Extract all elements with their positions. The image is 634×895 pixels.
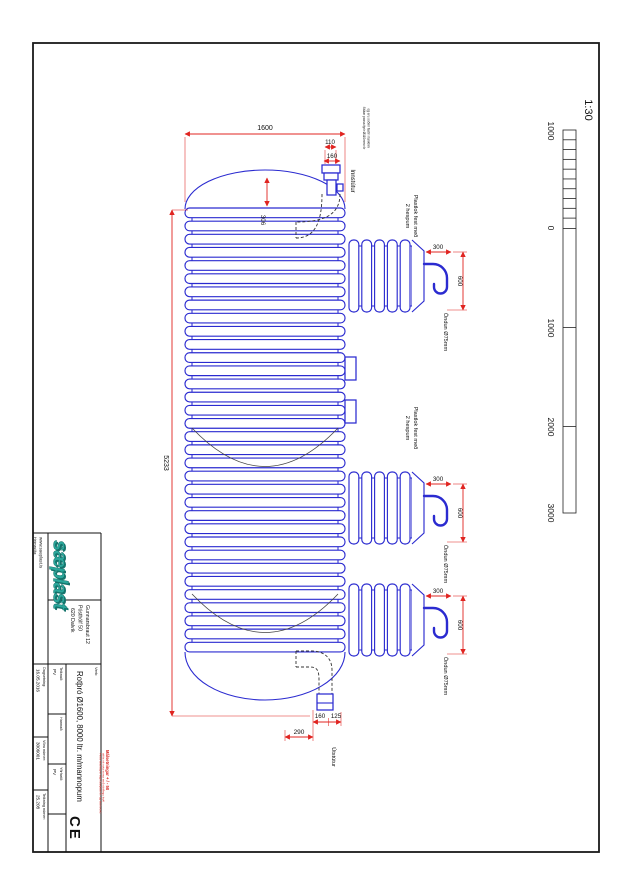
saeplast-logo: sæplast <box>49 540 71 611</box>
designed-label: Hannað: <box>59 717 64 731</box>
outlet-elbow <box>296 651 332 694</box>
dim-vent-height-3: 600 <box>456 620 463 631</box>
lifting-lug-1 <box>345 357 356 380</box>
inlet-label: Innstútur <box>349 169 355 192</box>
checked-value: PV <box>52 769 57 776</box>
date-value: 16.05.2016 <box>36 669 41 692</box>
homepage-label: Heimasíða: <box>33 537 38 555</box>
vent-label-2: Öndun Ø75mm <box>442 545 449 584</box>
outlet-label: Útstútur <box>330 747 337 767</box>
scale-tick-2: 1000 <box>546 319 556 338</box>
lifting-lug-2 <box>345 400 356 423</box>
dim-diameter: 1600 <box>257 125 273 132</box>
product-no-value: 3006001 <box>36 742 41 760</box>
inlet-stub <box>322 165 343 195</box>
manholes <box>349 240 467 656</box>
drawing-sheet: 1600 110 160 306 5233 300 300 300 600 60… <box>0 0 634 895</box>
project-label: Verk: <box>94 667 99 676</box>
drawn-label: Teiknað: <box>59 667 64 681</box>
dim-outlet-b: 125 <box>331 713 342 720</box>
scale-bar: 1:30 1000 0 1000 2000 3000 <box>546 99 594 522</box>
scale-tick-1: 0 <box>546 226 556 231</box>
lid-note-1-line2: 2 hespum <box>404 204 410 229</box>
dim-outlet-a: 160 <box>315 713 326 720</box>
project-title: Rotþró Ø1600, 8000 ltr. m/mannopum <box>75 671 84 802</box>
scale-tick-0: 1000 <box>546 122 556 141</box>
lid-note-2-line1: Plastlok fest með <box>412 407 419 450</box>
dim-vent-height-1: 600 <box>456 276 463 287</box>
callout-texts: Innstútur Útstútur Öndun Ø75mm Öndun Ø75… <box>330 107 449 767</box>
tank-top-dome <box>185 170 345 209</box>
vent-label-3: Öndun Ø75mm <box>442 657 449 696</box>
drawing-no-value: 25.208 <box>36 795 41 809</box>
tank-bottom-dome <box>185 652 345 700</box>
dim-outlet-c: 290 <box>294 729 305 736</box>
dim-vent-offset-2: 300 <box>433 476 444 483</box>
homepage-url: www.saeplast.is <box>39 537 44 569</box>
outlet-stub <box>317 694 333 710</box>
lid-note-1-line1: Plastlok fest með <box>412 195 419 238</box>
checked-label: Yfirfarið: <box>59 767 64 781</box>
tolerance-note: Málsetningar + / - 50 <box>105 750 110 791</box>
tank-drawing-svg: 1600 110 160 306 5233 300 300 300 600 60… <box>0 0 634 895</box>
title-block: sæplast sæplast Heimasíða: www.saeplast.… <box>33 533 110 852</box>
date-label: Dagsetning: <box>42 667 46 687</box>
address-line2: Pósthólf 50 <box>77 605 83 631</box>
dim-vent-offset-3: 300 <box>433 588 444 595</box>
ce-mark: CE <box>66 816 83 841</box>
dim-vent-height-2: 600 <box>456 508 463 519</box>
inlet-fine-note-line2: og eru soðnir fastir í tankinn <box>367 108 372 148</box>
scale-tick-4: 3000 <box>546 504 556 523</box>
scale-bar-subdivisions <box>563 140 576 218</box>
drawing-no-label: Teikning númer: <box>42 793 46 820</box>
dim-total-length: 5233 <box>162 455 169 471</box>
tank-body <box>185 170 356 700</box>
lid-note-2-line2: 2 hespum <box>404 416 410 441</box>
dim-inlet-outer: 160 <box>327 153 338 160</box>
dim-dome-height: 306 <box>259 215 266 226</box>
address-line1: Gunnarsbraut 12 <box>84 605 90 644</box>
drawn-value: PV <box>52 669 57 676</box>
vent-label-1: Öndun Ø75mm <box>442 313 449 352</box>
dim-inlet-width: 110 <box>325 139 335 146</box>
product-no-label: Vöru númer: <box>42 740 46 761</box>
scale-label: 1:30 <box>582 99 594 120</box>
inlet-fine-note-line1: Stútar passa fyrir Ø110mm rör <box>362 107 366 151</box>
address-line3: 620 Dalvík <box>69 608 75 633</box>
dim-vent-offset-1: 300 <box>433 244 444 251</box>
scale-tick-3: 2000 <box>546 418 556 437</box>
